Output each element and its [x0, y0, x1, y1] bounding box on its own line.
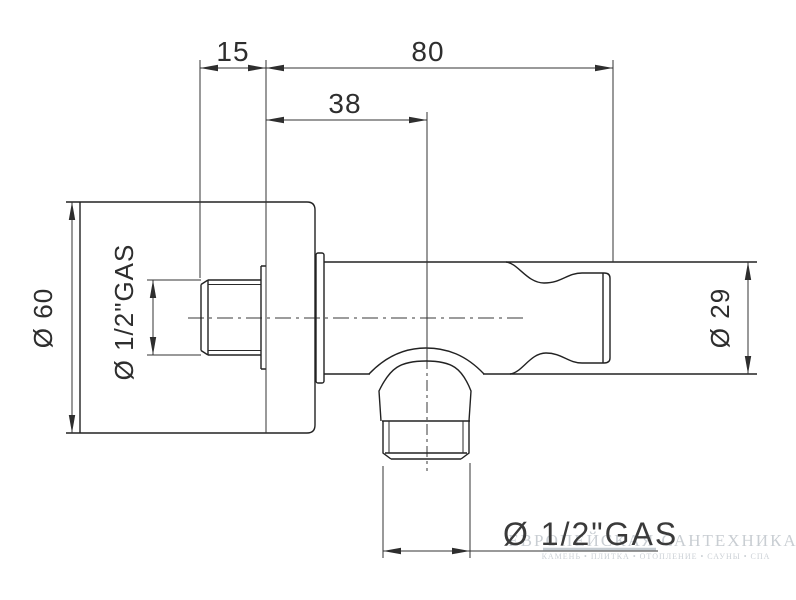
arrow-d29-bottom — [745, 356, 751, 374]
outlet-bell-inner-neck — [379, 361, 471, 421]
arrow-38-left — [266, 117, 284, 123]
arrow-outlet-left — [383, 548, 401, 554]
dim-label-diameter-29: Ø 29 — [705, 288, 735, 348]
arrow-38-right — [409, 117, 427, 123]
arrow-d60-bottom — [69, 415, 75, 433]
dim-label-diameter-60: Ø 60 — [28, 288, 58, 348]
handle-waist-bottom — [510, 353, 604, 374]
watermark-tagline: КАМЕНЬ • ПЛИТКА • ОТОПЛЕНИЕ • САУНЫ • СП… — [542, 552, 771, 561]
dim-label-outlet-thread: Ø 1/2"GAS — [503, 516, 678, 552]
arrow-15-right — [248, 65, 266, 71]
handle-waist-top — [506, 262, 604, 283]
dim-label-15: 15 — [216, 36, 249, 67]
arrow-80-right — [595, 65, 613, 71]
drawing-canvas: ЕВРОПЕЙСКАЯ САНТЕХНИКА КАМЕНЬ • ПЛИТКА •… — [0, 0, 796, 600]
arrow-d60-top — [69, 202, 75, 220]
technical-drawing: ЕВРОПЕЙСКАЯ САНТЕХНИКА КАМЕНЬ • ПЛИТКА •… — [0, 0, 796, 600]
outlet-thread-outline — [382, 421, 470, 459]
arrow-15-left — [200, 65, 218, 71]
arrow-d29-top — [745, 262, 751, 280]
arrow-outlet-right — [452, 548, 470, 554]
dim-label-inlet-thread: Ø 1/2"GAS — [109, 244, 139, 381]
arrow-inlet-bottom — [150, 337, 156, 355]
object-lines — [66, 202, 757, 459]
dimension-labels: 15 80 38 Ø 60 Ø 1/2"GAS Ø 29 Ø 1/2"GAS — [28, 36, 735, 552]
dim-label-80: 80 — [411, 36, 444, 67]
outlet-thread-root — [389, 421, 463, 453]
handle-end-cap — [603, 273, 610, 363]
centerlines — [188, 318, 523, 471]
dimension-lines — [72, 60, 748, 558]
dim-label-38: 38 — [328, 88, 361, 119]
arrow-inlet-top — [150, 280, 156, 298]
dimension-arrows — [69, 65, 751, 554]
arrow-80-left — [266, 65, 284, 71]
